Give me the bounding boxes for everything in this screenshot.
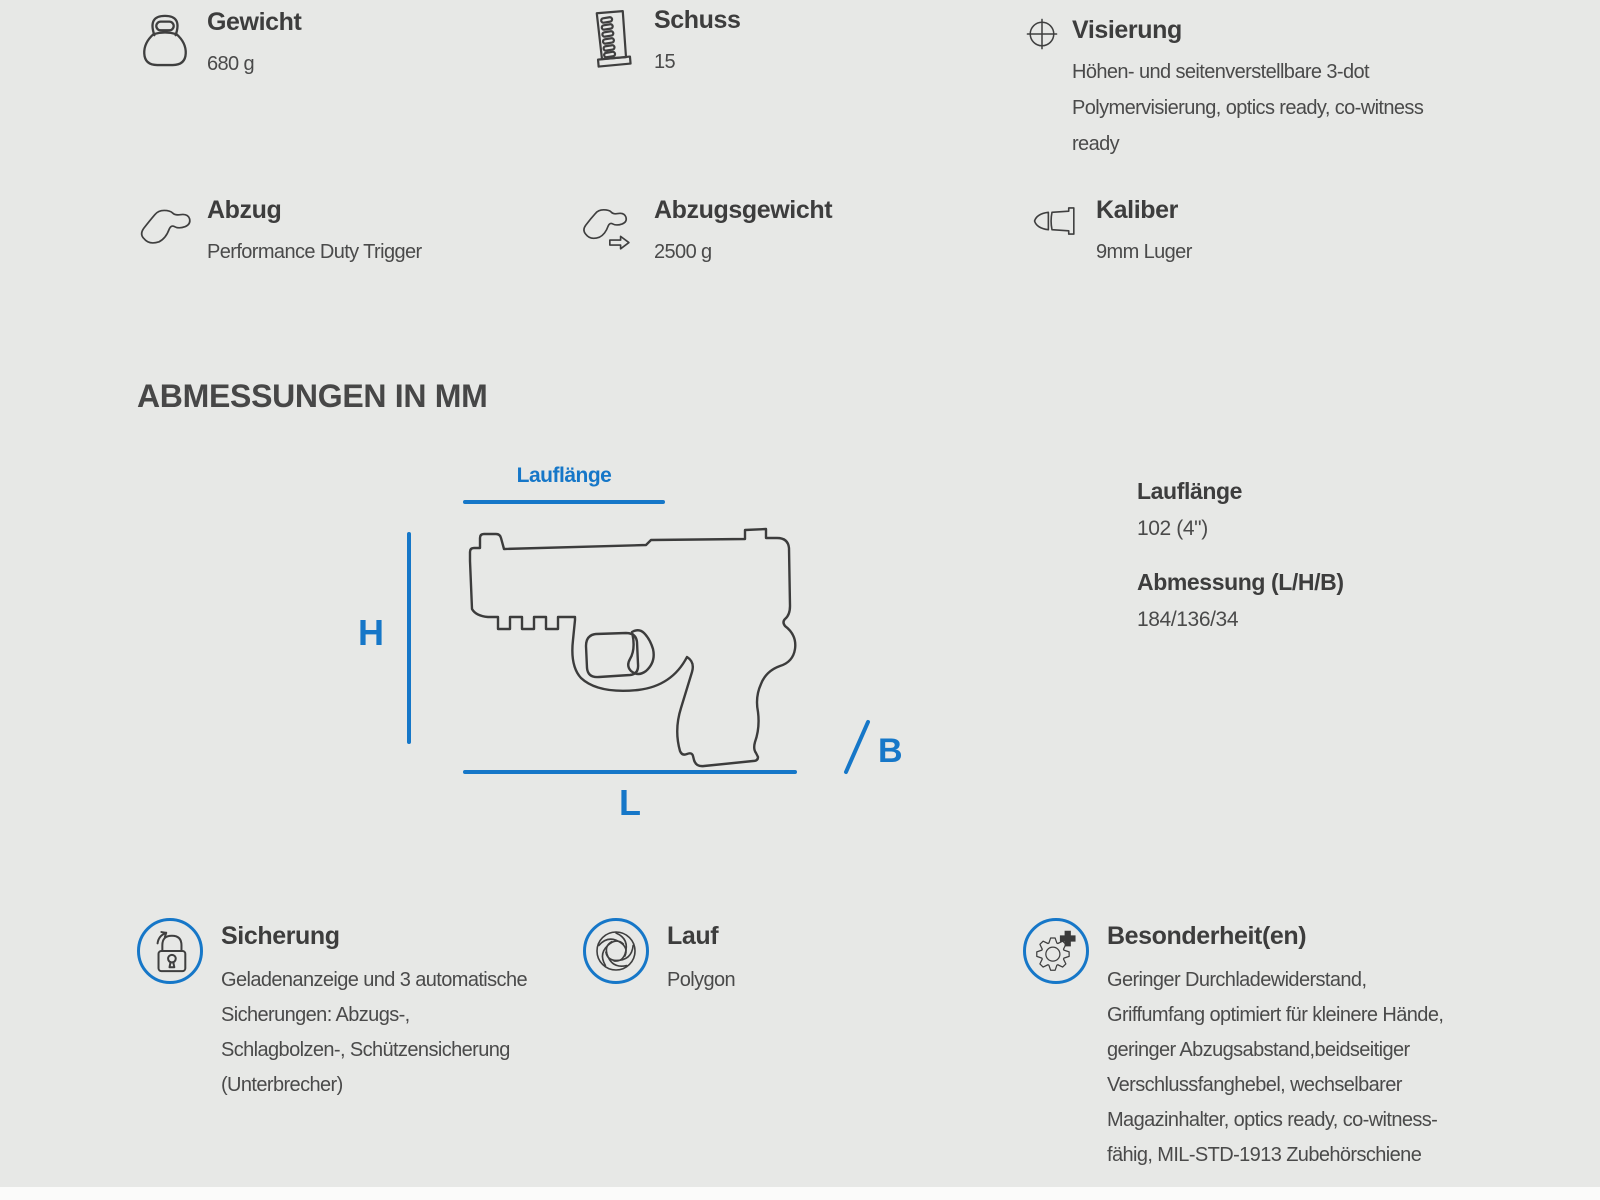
spec-value: 15 bbox=[654, 44, 741, 80]
magazine-icon bbox=[588, 6, 638, 72]
spec-value: 9mm Luger bbox=[1096, 234, 1192, 270]
trigger-icon bbox=[137, 200, 193, 248]
gear-plus-icon bbox=[1023, 918, 1089, 984]
dimension-details: Lauflänge 102 (4") Abmessung (L/H/B) 184… bbox=[1137, 478, 1344, 632]
spec-value: 2500 g bbox=[654, 234, 832, 270]
spec-sheet-page: Gewicht 680 g Schuss 15 bbox=[0, 0, 1600, 1200]
spec-item-schuss: Schuss 15 bbox=[588, 6, 741, 80]
spec-item-kaliber: Kaliber 9mm Luger bbox=[1028, 196, 1192, 270]
width-dim-line bbox=[842, 718, 872, 776]
spec-item-gewicht: Gewicht 680 g bbox=[137, 8, 301, 82]
rifling-icon bbox=[583, 918, 649, 984]
spec-value: Höhen- und seitenverstellbare 3-dot Poly… bbox=[1072, 54, 1444, 162]
barrel-length-label: Lauflänge bbox=[463, 464, 665, 488]
spec-label: Kaliber bbox=[1096, 196, 1192, 225]
crosshair-icon bbox=[1026, 18, 1058, 50]
bullet-icon bbox=[1028, 204, 1076, 238]
spec-label: Abzugsgewicht bbox=[654, 196, 832, 225]
spec-label: Visierung bbox=[1072, 16, 1444, 45]
spec-value: Performance Duty Trigger bbox=[207, 234, 422, 270]
feature-item-sicherung: Sicherung Geladenanzeige und 3 automatis… bbox=[137, 918, 529, 1103]
dimensions-diagram: Lauflänge H L B bbox=[330, 440, 990, 850]
spec-label: Schuss bbox=[654, 6, 741, 35]
feature-value: Geladenanzeige und 3 automatische Sicher… bbox=[221, 963, 529, 1103]
detail-label: Lauflänge bbox=[1137, 478, 1344, 505]
trigger-weight-icon bbox=[580, 200, 638, 252]
barrel-length-dim-line bbox=[463, 500, 665, 504]
bottom-divider bbox=[0, 1187, 1600, 1200]
spec-item-visierung: Visierung Höhen- und seitenverstellbare … bbox=[1026, 16, 1444, 162]
feature-label: Sicherung bbox=[221, 922, 529, 951]
pistol-outline-drawing bbox=[458, 516, 808, 768]
detail-label: Abmessung (L/H/B) bbox=[1137, 569, 1344, 596]
feature-value: Geringer Durchladewiderstand, Griffumfan… bbox=[1107, 963, 1457, 1173]
feature-value: Polygon bbox=[667, 963, 735, 998]
feature-item-lauf: Lauf Polygon bbox=[583, 918, 735, 998]
detail-value: 184/136/34 bbox=[1137, 608, 1344, 632]
height-label: H bbox=[358, 612, 384, 654]
spec-label: Gewicht bbox=[207, 8, 301, 37]
detail-abmessung: Abmessung (L/H/B) 184/136/34 bbox=[1137, 569, 1344, 632]
feature-label: Besonderheit(en) bbox=[1107, 922, 1457, 951]
width-label: B bbox=[878, 732, 903, 771]
lock-icon bbox=[137, 918, 203, 984]
spec-label: Abzug bbox=[207, 196, 422, 225]
spec-item-abzug: Abzug Performance Duty Trigger bbox=[137, 196, 422, 270]
feature-label: Lauf bbox=[667, 922, 735, 951]
feature-item-besonderheiten: Besonderheit(en) Geringer Durchladewider… bbox=[1023, 918, 1457, 1173]
length-dim-line bbox=[463, 770, 797, 774]
spec-item-abzugsgewicht: Abzugsgewicht 2500 g bbox=[580, 196, 832, 270]
detail-lauflaenge: Lauflänge 102 (4") bbox=[1137, 478, 1344, 541]
spec-value: 680 g bbox=[207, 46, 301, 82]
section-heading-abmessungen: ABMESSUNGEN IN MM bbox=[137, 378, 487, 415]
detail-value: 102 (4") bbox=[1137, 517, 1344, 541]
kettlebell-icon bbox=[137, 8, 193, 70]
height-dim-line bbox=[407, 532, 411, 744]
length-label: L bbox=[463, 782, 797, 824]
